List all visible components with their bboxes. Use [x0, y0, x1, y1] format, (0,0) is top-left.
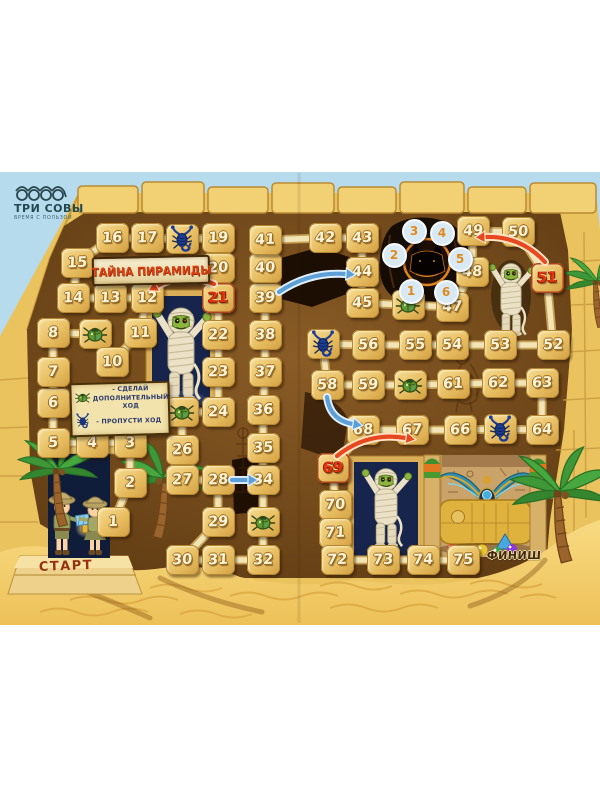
- spinner-number-6: 6: [434, 280, 459, 305]
- legend-sign: - СДЕЛАЙ ДОПОЛНИТЕЛЬНЫЙ ХОД - ПРОПУСТИ Х…: [69, 381, 170, 438]
- spinner-number-3: 3: [402, 219, 427, 244]
- finish-label: ФИНИШ: [479, 549, 550, 562]
- scarab-icon: [74, 390, 90, 405]
- scarab-icon: [74, 390, 90, 409]
- game-title: ТАЙНА ПИРАМИДЫ: [91, 262, 211, 279]
- legend-skip-turn-row: - ПРОПУСТИ ХОД: [75, 410, 165, 432]
- start-label: СТАРТ: [28, 558, 104, 576]
- legend-extra-move-label: - СДЕЛАЙ ДОПОЛНИТЕЛЬНЫЙ ХОД: [92, 385, 168, 411]
- scorpion-icon: [75, 412, 90, 428]
- legend-extra-move-row: - СДЕЛАЙ ДОПОЛНИТЕЛЬНЫЙ ХОД: [74, 385, 165, 412]
- publisher-logo: ТРИ СОВЫ ВРЕМЯ С ПОЛЬЗОЙ: [14, 183, 124, 221]
- title-banner: ТАЙНА ПИРАМИДЫ: [92, 255, 211, 286]
- legend-skip-turn-label: - ПРОПУСТИ ХОД: [92, 416, 165, 426]
- publisher-name: ТРИ СОВЫ: [14, 203, 124, 215]
- scorpion-icon: [75, 412, 91, 432]
- spinner-number-1: 1: [399, 279, 424, 304]
- three-owls-icon: [14, 183, 80, 203]
- spinner-number-4: 4: [430, 221, 455, 246]
- publisher-tagline: ВРЕМЯ С ПОЛЬЗОЙ: [14, 216, 124, 221]
- spinner-number-2: 2: [382, 243, 407, 268]
- spinner-number-5: 5: [448, 247, 473, 272]
- board-game-photo: 12345678 1011121314151617 192021222324 2…: [0, 0, 600, 800]
